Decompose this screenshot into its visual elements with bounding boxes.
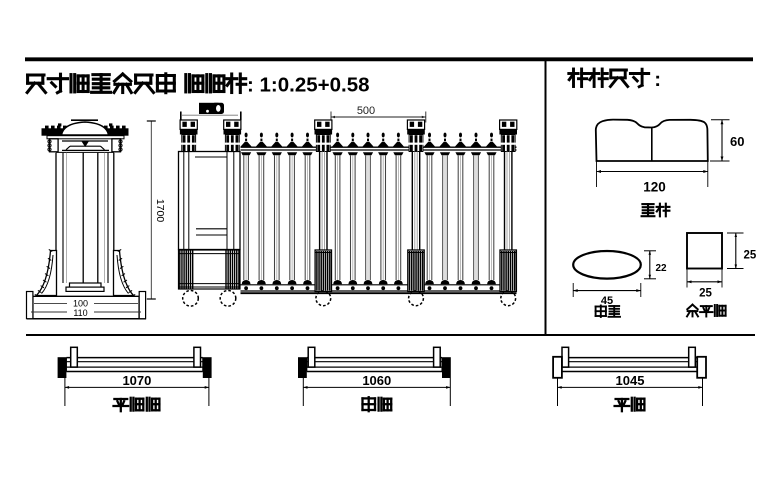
svg-text:25: 25: [699, 288, 712, 300]
svg-text:1045: 1045: [616, 373, 645, 388]
svg-text:: 1:0.25+0.58: : 1:0.25+0.58: [247, 74, 370, 97]
svg-text::: :: [654, 68, 661, 91]
svg-text:1070: 1070: [122, 373, 151, 388]
svg-text:1700: 1700: [154, 199, 166, 223]
svg-text:25: 25: [744, 250, 757, 262]
svg-text:500: 500: [357, 105, 375, 117]
svg-text:60: 60: [730, 134, 744, 149]
svg-text:1060: 1060: [362, 373, 391, 388]
svg-text:120: 120: [643, 180, 666, 195]
svg-text:110: 110: [73, 308, 87, 318]
svg-text:22: 22: [656, 263, 668, 274]
